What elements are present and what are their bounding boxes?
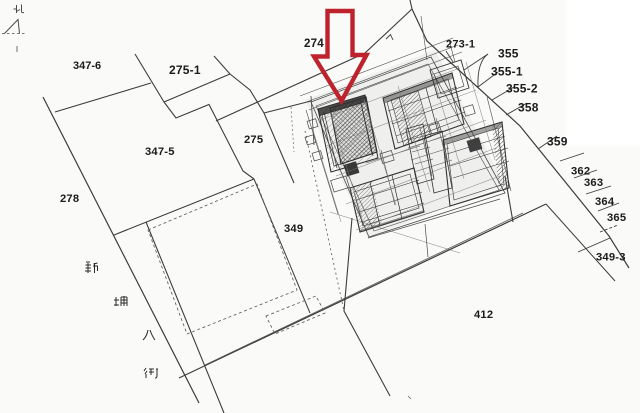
svg-text:347-5: 347-5 <box>145 146 175 158</box>
svg-text:363: 363 <box>584 177 603 189</box>
svg-text:275: 275 <box>244 134 263 146</box>
svg-text:355: 355 <box>498 47 519 61</box>
svg-text:355-2: 355-2 <box>506 82 538 96</box>
svg-text:274: 274 <box>304 37 324 50</box>
svg-text:358: 358 <box>518 101 539 115</box>
svg-text:412: 412 <box>474 309 493 321</box>
svg-text:359: 359 <box>547 135 568 149</box>
svg-text:362: 362 <box>571 166 590 178</box>
svg-text:278: 278 <box>60 193 79 205</box>
svg-text:364: 364 <box>595 196 615 208</box>
svg-text:355-1: 355-1 <box>491 65 523 79</box>
svg-text:349: 349 <box>284 223 303 235</box>
svg-text:349-3: 349-3 <box>596 252 626 264</box>
svg-text:365: 365 <box>607 212 626 224</box>
svg-text:275-1: 275-1 <box>169 63 201 77</box>
svg-text:273-1: 273-1 <box>446 39 475 51</box>
svg-text:347-6: 347-6 <box>73 60 101 72</box>
